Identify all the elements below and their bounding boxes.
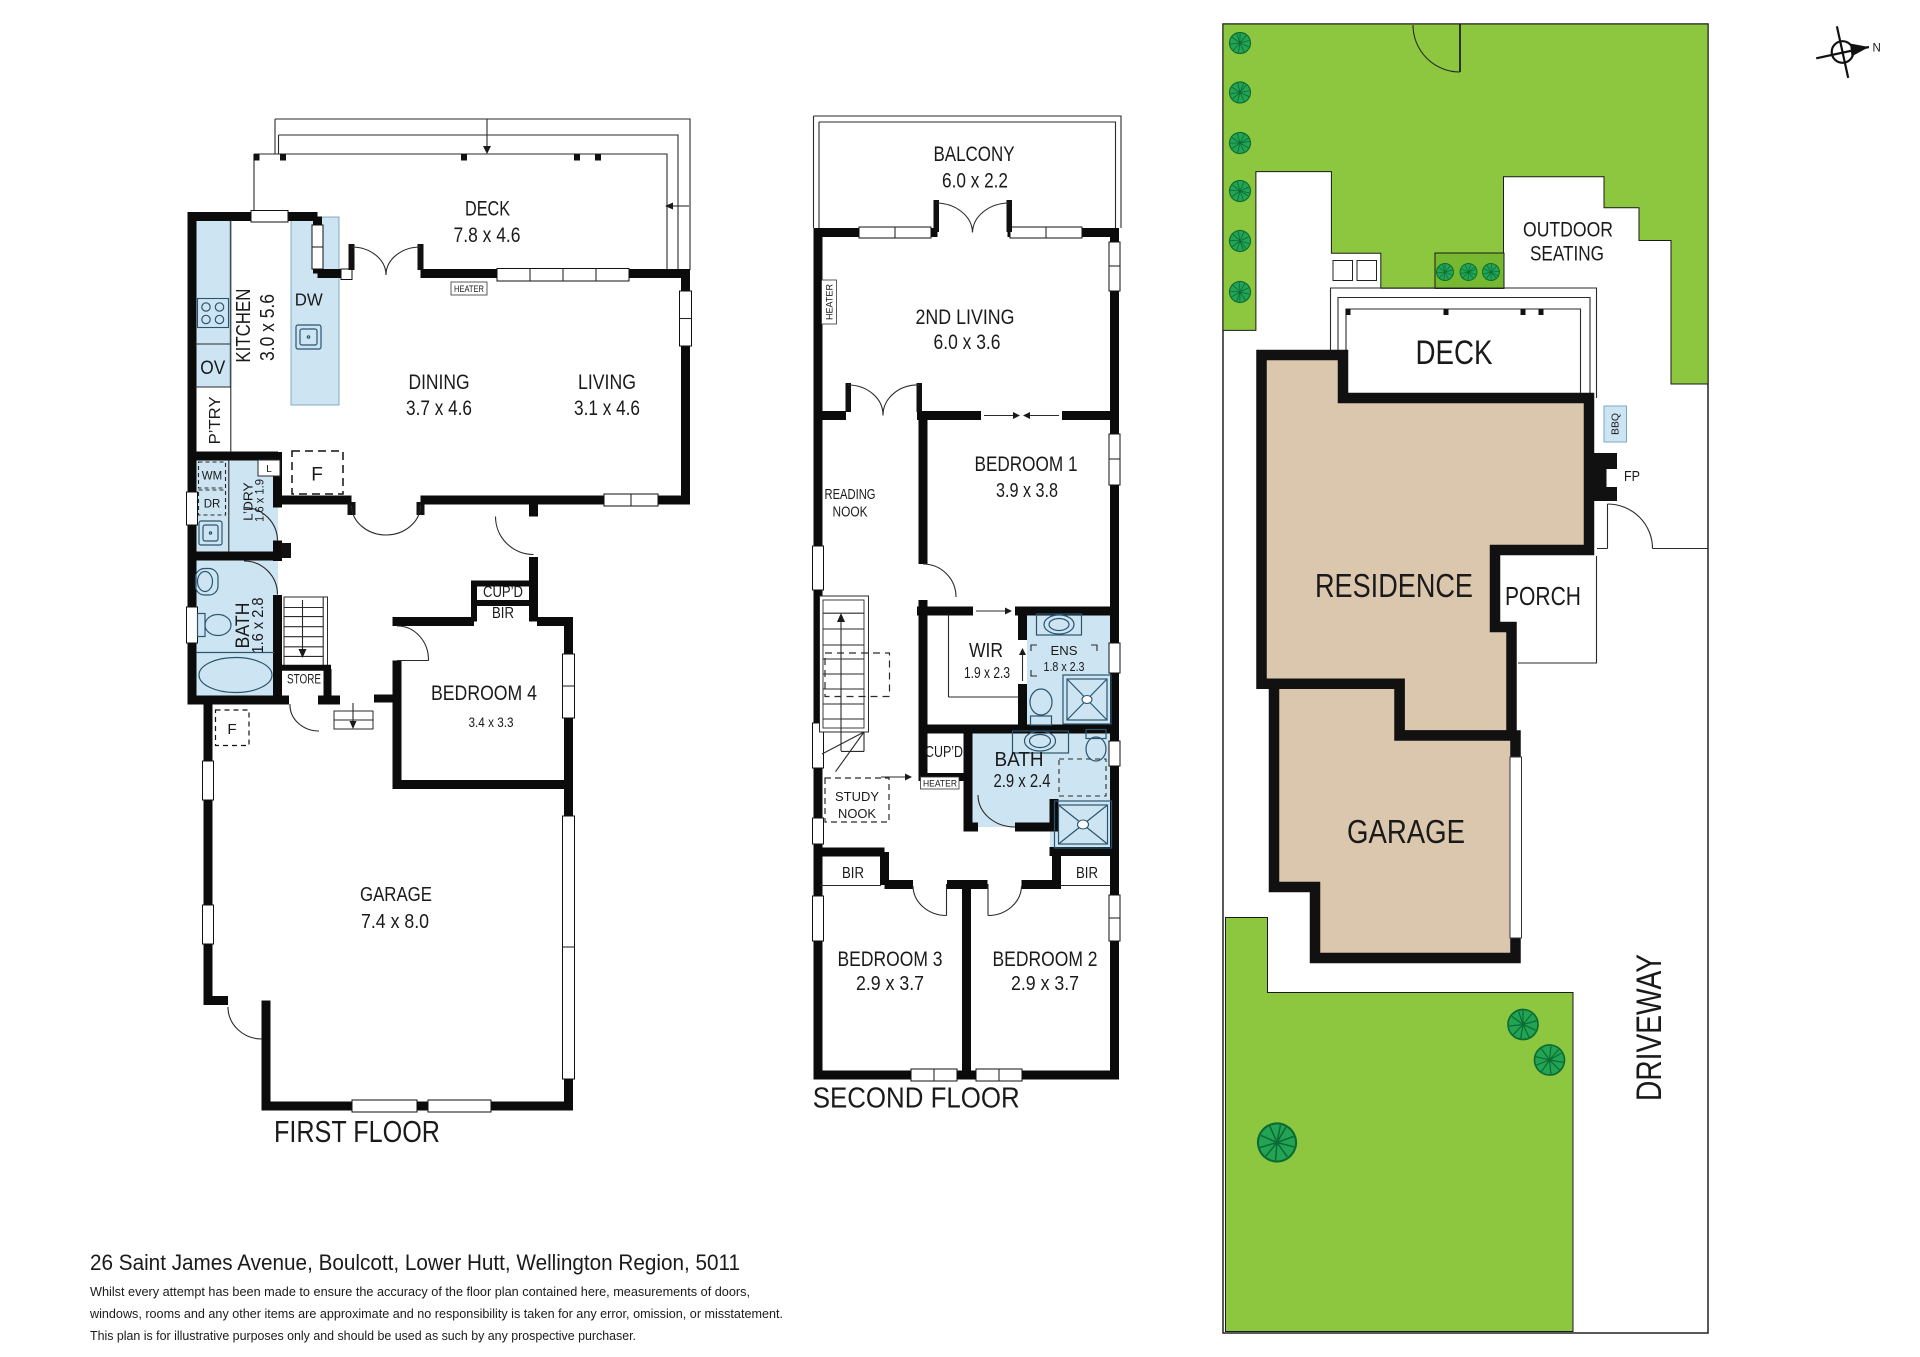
svg-text:6.0 x 2.2: 6.0 x 2.2 bbox=[942, 170, 1008, 193]
svg-text:READING: READING bbox=[825, 486, 876, 503]
svg-text:2ND LIVING: 2ND LIVING bbox=[916, 306, 1015, 329]
svg-text:SECOND FLOOR: SECOND FLOOR bbox=[813, 1083, 1020, 1115]
svg-text:OV: OV bbox=[200, 358, 225, 379]
svg-text:3.0 x 5.6: 3.0 x 5.6 bbox=[257, 294, 279, 361]
svg-text:This plan is for illustrative: This plan is for illustrative purposes o… bbox=[90, 1328, 636, 1343]
svg-text:DECK: DECK bbox=[1416, 334, 1493, 372]
svg-text:1.8 x 2.3: 1.8 x 2.3 bbox=[1044, 660, 1085, 674]
svg-text:OUTDOOR: OUTDOOR bbox=[1523, 218, 1613, 242]
svg-text:3.7 x 4.6: 3.7 x 4.6 bbox=[406, 397, 472, 420]
svg-text:1.6 x 2.8: 1.6 x 2.8 bbox=[250, 597, 267, 653]
svg-text:BIR: BIR bbox=[492, 605, 514, 622]
svg-text:CUP’D: CUP’D bbox=[925, 744, 963, 761]
svg-text:L: L bbox=[266, 464, 272, 475]
svg-text:7.4 x 8.0: 7.4 x 8.0 bbox=[361, 910, 429, 933]
svg-text:6.0 x 3.6: 6.0 x 3.6 bbox=[934, 331, 1001, 354]
svg-text:1.9 x 2.3: 1.9 x 2.3 bbox=[964, 665, 1010, 682]
svg-text:BEDROOM 2: BEDROOM 2 bbox=[993, 948, 1098, 971]
svg-text:1.6 x 1.9: 1.6 x 1.9 bbox=[253, 479, 267, 522]
svg-text:WIR: WIR bbox=[969, 639, 1003, 662]
svg-text:WM: WM bbox=[202, 471, 222, 483]
svg-text:windows, rooms and any other i: windows, rooms and any other items are a… bbox=[89, 1306, 783, 1321]
svg-text:STUDY: STUDY bbox=[835, 789, 879, 804]
svg-text:BBQ: BBQ bbox=[1610, 413, 1622, 435]
svg-text:FIRST FLOOR: FIRST FLOOR bbox=[274, 1114, 440, 1149]
svg-text:2.9 x 2.4: 2.9 x 2.4 bbox=[994, 771, 1051, 791]
svg-text:3.1 x 4.6: 3.1 x 4.6 bbox=[574, 397, 640, 420]
svg-text:BEDROOM 4: BEDROOM 4 bbox=[431, 682, 537, 705]
svg-text:BIR: BIR bbox=[842, 865, 864, 882]
svg-text:F: F bbox=[311, 465, 323, 486]
svg-text:HEATER: HEATER bbox=[825, 284, 836, 320]
svg-text:Whilst every attempt has been: Whilst every attempt has been made to en… bbox=[90, 1284, 750, 1299]
svg-text:DW: DW bbox=[295, 290, 323, 310]
svg-text:ENS: ENS bbox=[1051, 643, 1078, 658]
svg-text:HEATER: HEATER bbox=[923, 779, 957, 790]
svg-text:BIR: BIR bbox=[1076, 865, 1098, 882]
svg-text:P’TRY: P’TRY bbox=[207, 396, 224, 444]
svg-text:CUP’D: CUP’D bbox=[483, 584, 523, 601]
svg-text:NOOK: NOOK bbox=[833, 504, 868, 521]
svg-text:2.9 x 3.7: 2.9 x 3.7 bbox=[1011, 973, 1079, 995]
svg-text:DR: DR bbox=[204, 499, 221, 511]
svg-text:7.8 x 4.6: 7.8 x 4.6 bbox=[454, 224, 521, 247]
svg-text:HEATER: HEATER bbox=[454, 284, 484, 295]
svg-text:NOOK: NOOK bbox=[838, 806, 876, 821]
svg-text:GARAGE: GARAGE bbox=[1347, 814, 1465, 851]
svg-text:SEATING: SEATING bbox=[1530, 243, 1604, 266]
svg-text:STORE: STORE bbox=[287, 672, 321, 687]
svg-text:BEDROOM 1: BEDROOM 1 bbox=[975, 453, 1078, 476]
svg-text:KITCHEN: KITCHEN bbox=[233, 289, 255, 363]
svg-text:F: F bbox=[227, 721, 236, 738]
svg-text:2.9 x 3.7: 2.9 x 3.7 bbox=[856, 973, 924, 995]
svg-text:DRIVEWAY: DRIVEWAY bbox=[1630, 954, 1669, 1101]
svg-text:N: N bbox=[1873, 43, 1881, 55]
svg-text:BATH: BATH bbox=[995, 749, 1044, 771]
svg-text:BALCONY: BALCONY bbox=[934, 143, 1015, 166]
svg-text:DECK: DECK bbox=[465, 198, 510, 221]
svg-text:RESIDENCE: RESIDENCE bbox=[1315, 568, 1473, 605]
svg-text:3.4 x 3.3: 3.4 x 3.3 bbox=[469, 714, 514, 730]
svg-text:3.9 x 3.8: 3.9 x 3.8 bbox=[996, 480, 1058, 502]
svg-text:DINING: DINING bbox=[409, 371, 470, 394]
svg-text:FP: FP bbox=[1624, 468, 1640, 485]
svg-text:GARAGE: GARAGE bbox=[360, 883, 432, 906]
svg-text:PORCH: PORCH bbox=[1505, 581, 1581, 611]
svg-text:BEDROOM 3: BEDROOM 3 bbox=[838, 948, 943, 971]
svg-text:26 Saint James Avenue, Boulcot: 26 Saint James Avenue, Boulcott, Lower H… bbox=[90, 1250, 740, 1275]
svg-text:LIVING: LIVING bbox=[578, 371, 636, 394]
